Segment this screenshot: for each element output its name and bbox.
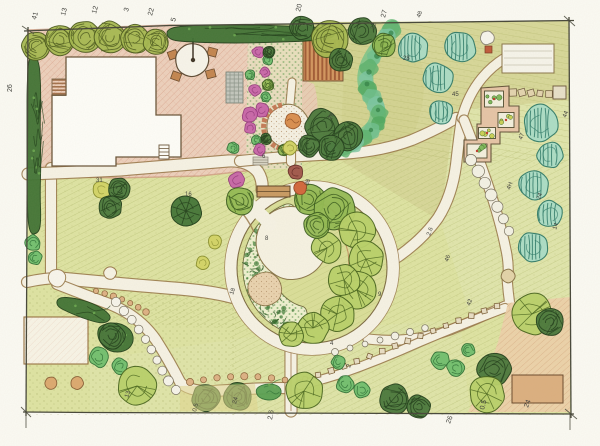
svg-text:26: 26 bbox=[7, 84, 14, 92]
svg-text:16: 16 bbox=[185, 192, 192, 198]
svg-text:45: 45 bbox=[452, 92, 459, 98]
svg-text:28: 28 bbox=[403, 56, 410, 62]
svg-text:31: 31 bbox=[96, 178, 103, 184]
